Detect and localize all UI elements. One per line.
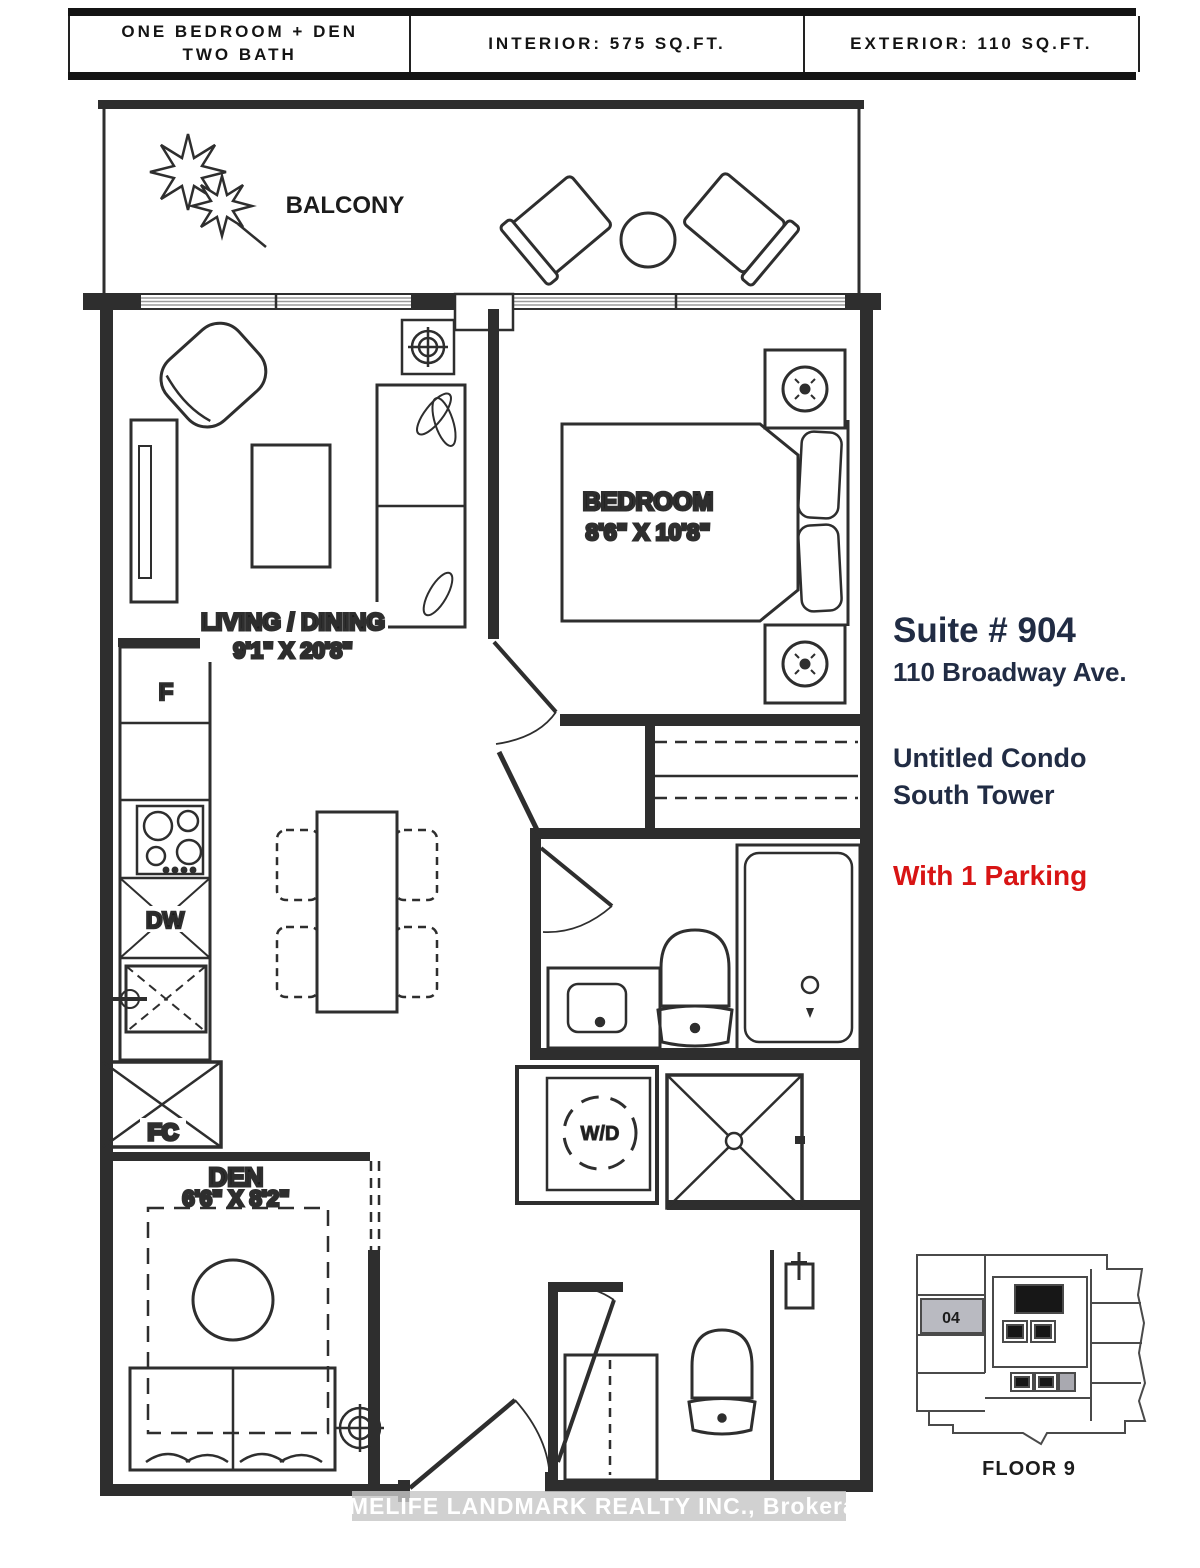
keyplan-floor-label: FLOOR 9 bbox=[982, 1458, 1076, 1480]
unit-type-line2: TWO BATH bbox=[183, 44, 297, 67]
window-wall bbox=[84, 294, 880, 330]
dishwasher-label: DW bbox=[146, 907, 185, 933]
parking-note: With 1 Parking bbox=[893, 860, 1127, 892]
bedroom: BEDROOM 8'6" X 10'8" bbox=[562, 350, 858, 798]
bedroom-closet bbox=[655, 742, 858, 798]
angled-walls bbox=[499, 752, 541, 838]
bedroom-dims: 8'6" X 10'8" bbox=[586, 519, 711, 545]
brokerage-watermark: HOMELIFE LANDMARK REALTY INC., Brokerage bbox=[352, 1491, 846, 1521]
header-top-rule bbox=[68, 8, 1136, 16]
column bbox=[455, 294, 513, 330]
laundry-closet: W/D bbox=[517, 1067, 657, 1203]
toilet2-icon bbox=[689, 1330, 755, 1434]
den-door-opening bbox=[371, 1161, 379, 1250]
den: DEN 6'6" X 8'2" bbox=[130, 1162, 384, 1470]
bedroom-label-group: BEDROOM 8'6" X 10'8" bbox=[565, 480, 733, 546]
fan-coil-closet: FC bbox=[103, 1062, 221, 1147]
balcony-table-icon bbox=[621, 213, 675, 267]
header-unit-type: ONE BEDROOM + DEN TWO BATH bbox=[70, 16, 411, 72]
floorplan-drawing: BALCONY bbox=[78, 88, 888, 1538]
entry-door bbox=[410, 1400, 550, 1488]
suite-address: 110 Broadway Ave. bbox=[893, 657, 1127, 688]
balcony: BALCONY bbox=[98, 100, 864, 296]
walls bbox=[100, 296, 873, 1502]
toilet-icon bbox=[658, 930, 732, 1046]
balcony-chair-left-icon bbox=[499, 171, 615, 286]
washer-dryer-label: W/D bbox=[581, 1123, 620, 1145]
balcony-label: BALCONY bbox=[286, 192, 405, 219]
building-name: Untitled Condo South Tower bbox=[893, 740, 1127, 815]
bathroom-main bbox=[548, 845, 860, 1050]
keyplan: 04 FLOOR 9 bbox=[895, 1243, 1195, 1488]
cooktop-icon bbox=[137, 806, 203, 874]
living-room: LIVING / DINING 9'1" X 20'8" bbox=[131, 312, 465, 663]
kitchen-sink-icon bbox=[113, 966, 206, 1032]
header-row: ONE BEDROOM + DEN TWO BATH INTERIOR: 575… bbox=[68, 16, 1140, 72]
vanity2-icon bbox=[565, 1355, 657, 1480]
nightstand-bottom-icon bbox=[765, 625, 845, 703]
plant-icon bbox=[150, 134, 266, 247]
ceiling-light-icon bbox=[402, 320, 454, 374]
fridge-label: F bbox=[159, 679, 174, 706]
den-dims: 6'6" X 8'2" bbox=[182, 1186, 289, 1211]
shower-icon bbox=[667, 1075, 805, 1208]
living-label-group: LIVING / DINING 9'1" X 20'8" bbox=[200, 602, 388, 663]
keyplan-unit-label: 04 bbox=[942, 1310, 960, 1327]
bathtub-icon bbox=[737, 845, 860, 1050]
bedroom-label: BEDROOM bbox=[583, 488, 714, 516]
header-interior-area: INTERIOR: 575 SQ.FT. bbox=[411, 16, 804, 72]
kitchen: F DW bbox=[113, 647, 210, 1060]
living-label: LIVING / DINING bbox=[201, 609, 385, 636]
bedroom-door bbox=[494, 642, 556, 744]
keyplan-outline bbox=[917, 1255, 1145, 1444]
living-dims: 9'1" X 20'8" bbox=[233, 638, 352, 663]
den-sofa-icon bbox=[130, 1368, 335, 1470]
coffee-table-icon bbox=[252, 445, 330, 567]
header-bottom-rule bbox=[68, 72, 1136, 80]
header-exterior-area: EXTERIOR: 110 SQ.FT. bbox=[805, 16, 1138, 72]
balcony-chair-right-icon bbox=[679, 168, 800, 287]
tv-console-icon bbox=[131, 420, 177, 602]
fan-coil-label: FC bbox=[148, 1119, 179, 1145]
nightstand-top-icon bbox=[765, 350, 845, 428]
dining-set-icon bbox=[277, 812, 437, 1012]
suite-info: Suite # 904 110 Broadway Ave. Untitled C… bbox=[893, 612, 1127, 892]
bathroom-door bbox=[541, 848, 612, 932]
electrical-panel-icon bbox=[786, 1252, 813, 1308]
floorplan-sheet: ONE BEDROOM + DEN TWO BATH INTERIOR: 575… bbox=[0, 0, 1200, 1568]
unit-type-line1: ONE BEDROOM + DEN bbox=[121, 21, 358, 44]
vanity-sink-icon bbox=[548, 968, 660, 1048]
sofa-icon bbox=[377, 385, 465, 627]
suite-number: Suite # 904 bbox=[893, 612, 1127, 651]
den-table-icon bbox=[193, 1260, 273, 1340]
